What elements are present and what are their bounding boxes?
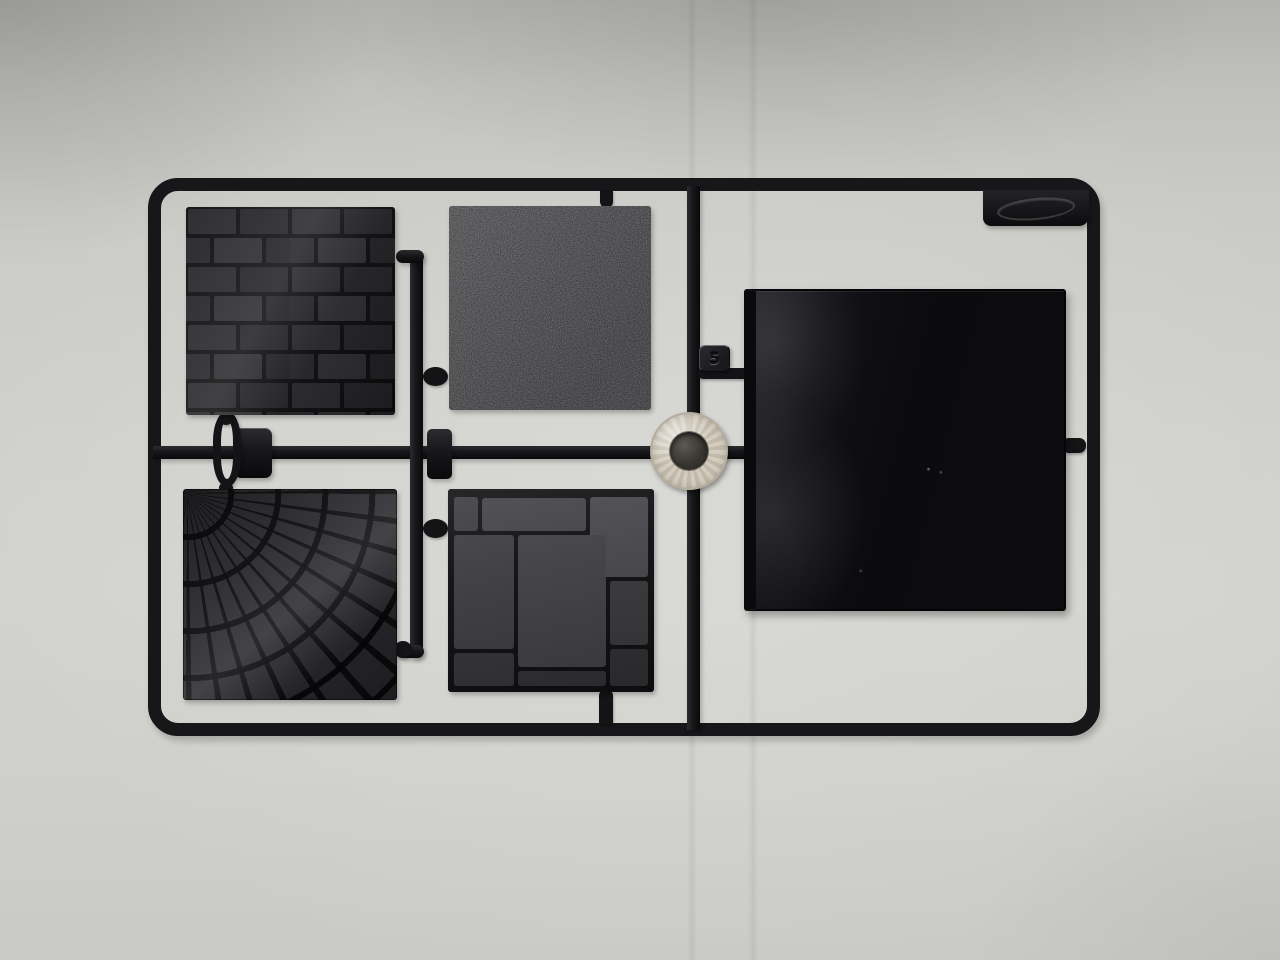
tile-fan-cobblestone (183, 489, 397, 700)
sprue-gate (423, 367, 448, 386)
ring-hole (670, 432, 708, 470)
tile-plain-large (744, 289, 1066, 611)
sprue-gate (423, 519, 448, 538)
brand-emboss-logo-icon (994, 195, 1077, 223)
sprue-junction-block (427, 429, 452, 479)
sprue-sub-runner-arm-top (396, 250, 424, 263)
tile-brick-wall (186, 207, 395, 415)
round-ring-part (650, 412, 728, 490)
sprue-gate (599, 689, 613, 724)
part-number-tag: 5 (699, 345, 730, 372)
part-number-text: 5 (709, 349, 720, 368)
tile-rough-texture (449, 206, 651, 410)
photo-backdrop: 5 (0, 0, 1280, 960)
tile-flagstone (448, 489, 654, 692)
brand-tab (983, 190, 1089, 226)
sprue-sub-runner-rod (410, 250, 423, 658)
